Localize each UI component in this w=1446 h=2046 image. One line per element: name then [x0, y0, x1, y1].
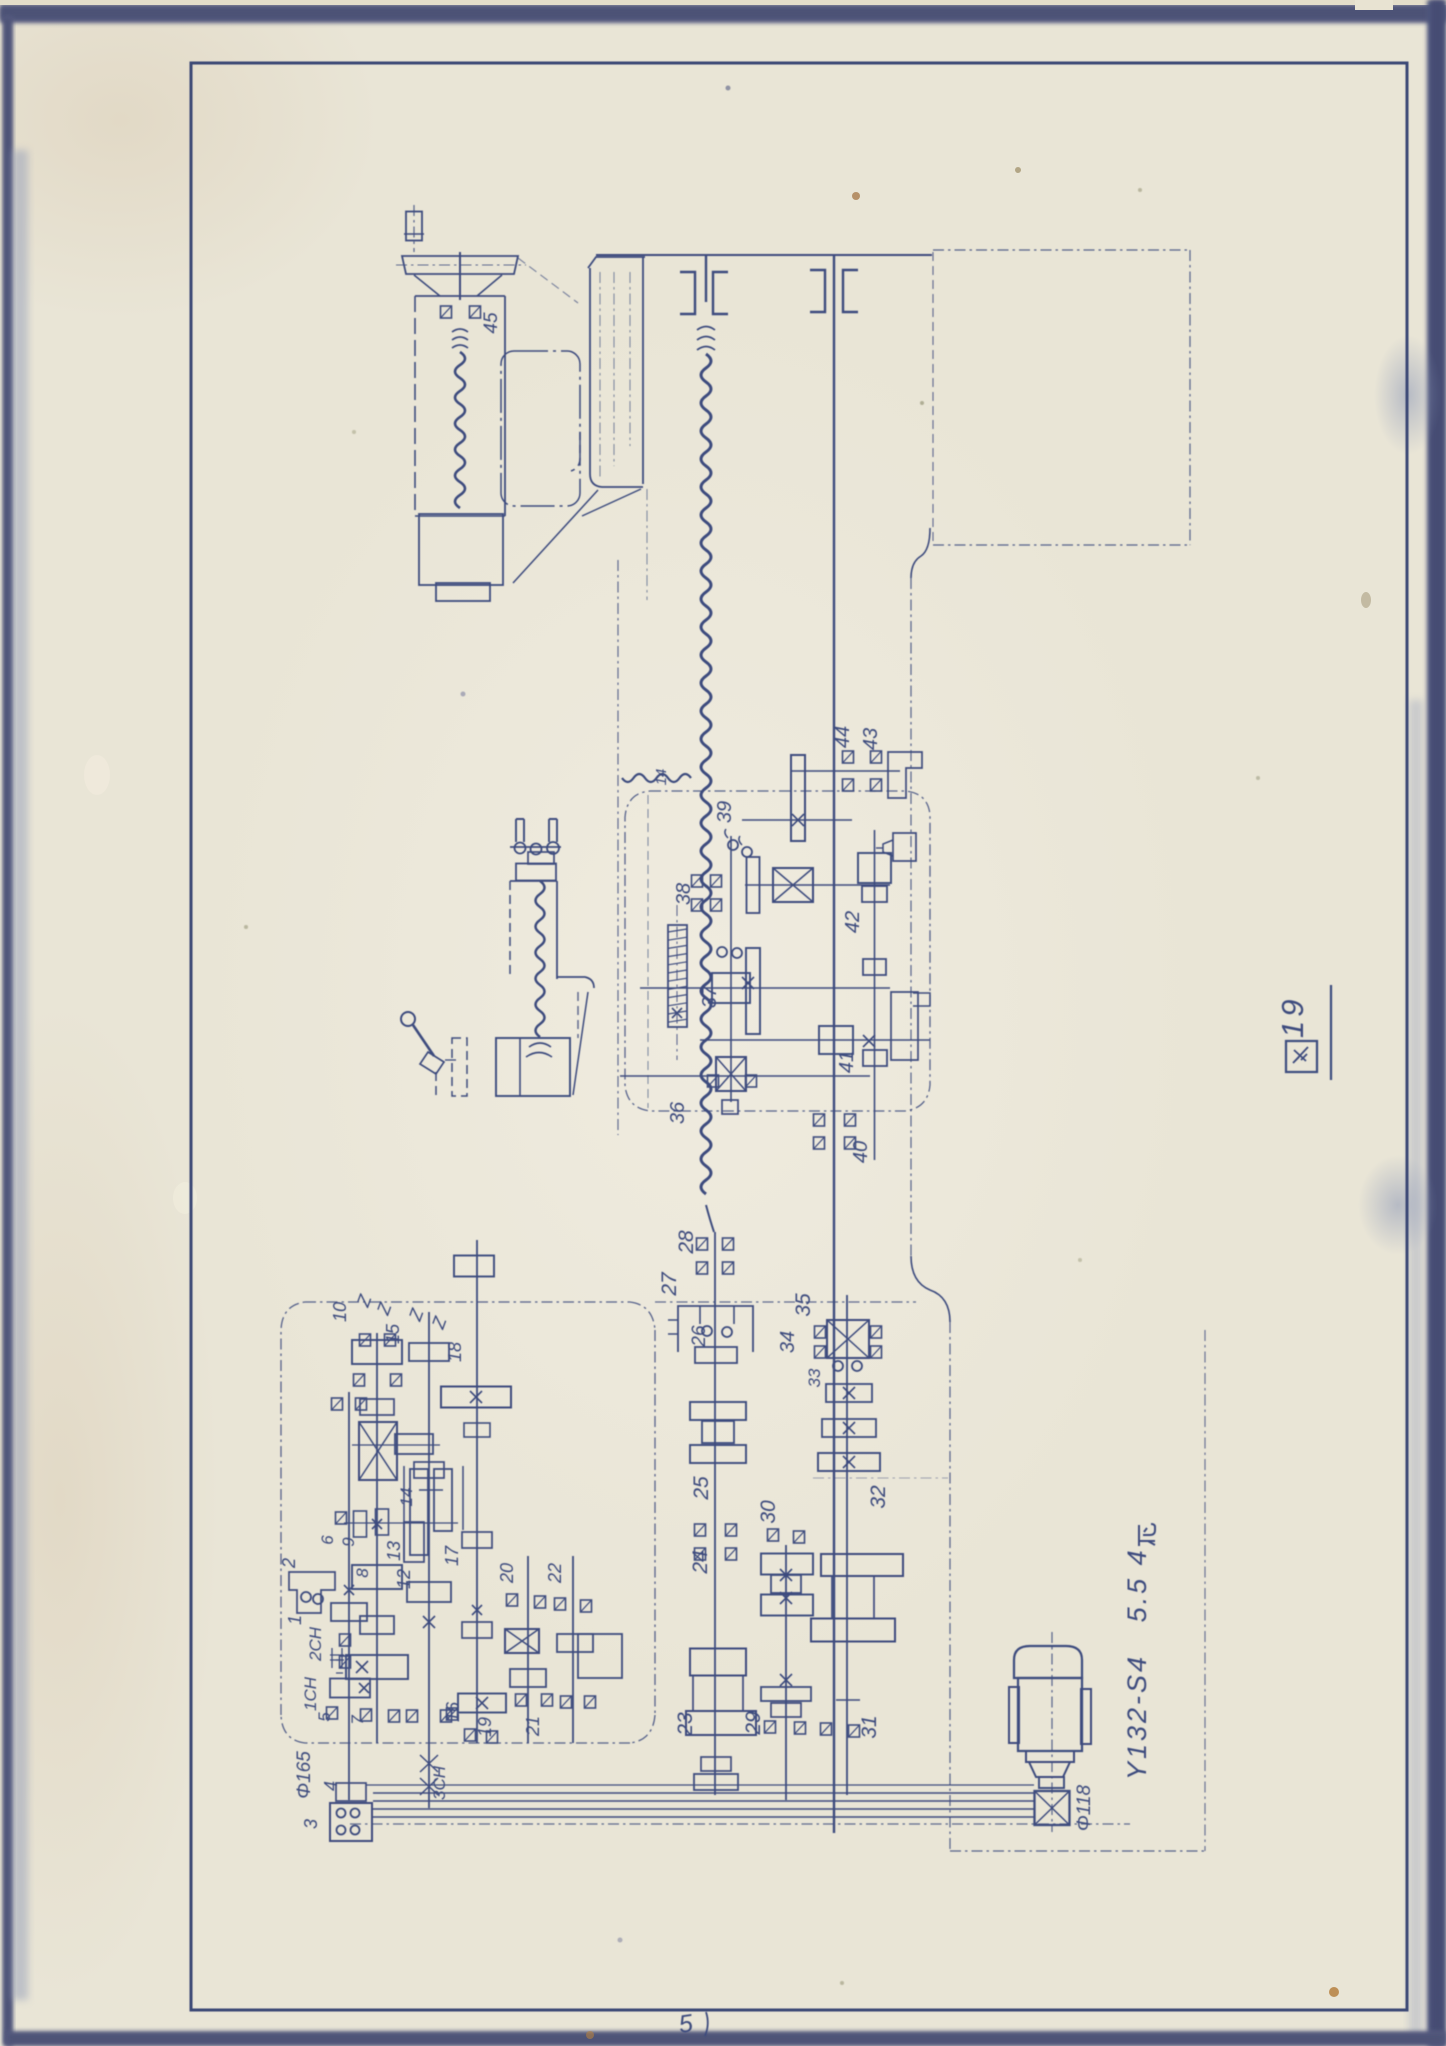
- svg-text:32: 32: [867, 1485, 890, 1509]
- svg-text:2CH: 2CH: [306, 1626, 325, 1662]
- svg-text:14: 14: [397, 1488, 416, 1507]
- svg-text:33: 33: [805, 1368, 824, 1387]
- svg-text:27: 27: [658, 1271, 681, 1297]
- svg-text:9: 9: [339, 1537, 358, 1547]
- svg-text:20: 20: [497, 1563, 517, 1584]
- svg-text:Φ118: Φ118: [1074, 1784, 1095, 1831]
- svg-text:31: 31: [858, 1715, 881, 1738]
- svg-text:7: 7: [348, 1715, 367, 1725]
- svg-text:1CH: 1CH: [301, 1676, 320, 1711]
- svg-text:1: 1: [285, 1615, 305, 1625]
- svg-text:5: 5: [315, 1712, 334, 1722]
- svg-text:3: 3: [301, 1819, 321, 1829]
- svg-text:Y132-S4 5.5 4: Y132-S4 5.5 4: [1122, 1547, 1152, 1780]
- svg-text:26: 26: [689, 1325, 710, 1348]
- svg-text:45: 45: [481, 312, 502, 334]
- svg-text:29: 29: [742, 1711, 765, 1736]
- svg-text:42: 42: [842, 911, 864, 933]
- svg-text:23: 23: [674, 1712, 697, 1737]
- svg-text:34: 34: [777, 1331, 799, 1353]
- svg-text:22: 22: [545, 1563, 565, 1584]
- svg-text:21: 21: [523, 1716, 543, 1737]
- svg-text:44: 44: [832, 726, 854, 748]
- svg-text:19: 19: [475, 1717, 495, 1737]
- svg-text:19: 19: [1275, 996, 1310, 1038]
- svg-text:30: 30: [757, 1500, 780, 1524]
- svg-text:3CH: 3CH: [430, 1765, 449, 1800]
- svg-text:8: 8: [353, 1568, 372, 1578]
- svg-text:43: 43: [860, 728, 882, 750]
- svg-text:10: 10: [330, 1302, 350, 1322]
- svg-text:13: 13: [384, 1541, 404, 1561]
- svg-text:16: 16: [443, 1701, 463, 1722]
- svg-text:15: 15: [383, 1323, 403, 1344]
- svg-text:4: 4: [321, 1781, 341, 1791]
- svg-text:38: 38: [673, 883, 695, 905]
- svg-text:Φ165: Φ165: [294, 1751, 315, 1799]
- svg-text:2: 2: [279, 1558, 299, 1569]
- svg-text:35: 35: [792, 1293, 815, 1317]
- svg-text:14: 14: [653, 769, 670, 786]
- svg-text:17: 17: [442, 1545, 462, 1566]
- svg-text:37: 37: [699, 985, 721, 1008]
- svg-text:12: 12: [394, 1569, 414, 1589]
- svg-text:36: 36: [667, 1101, 689, 1124]
- svg-text:39: 39: [714, 801, 736, 823]
- svg-text:25: 25: [690, 1476, 713, 1501]
- svg-text:40: 40: [850, 1141, 872, 1163]
- svg-text:41: 41: [836, 1051, 858, 1073]
- svg-text:6: 6: [318, 1535, 337, 1545]
- svg-text:28: 28: [675, 1230, 698, 1255]
- svg-text:18: 18: [445, 1342, 465, 1362]
